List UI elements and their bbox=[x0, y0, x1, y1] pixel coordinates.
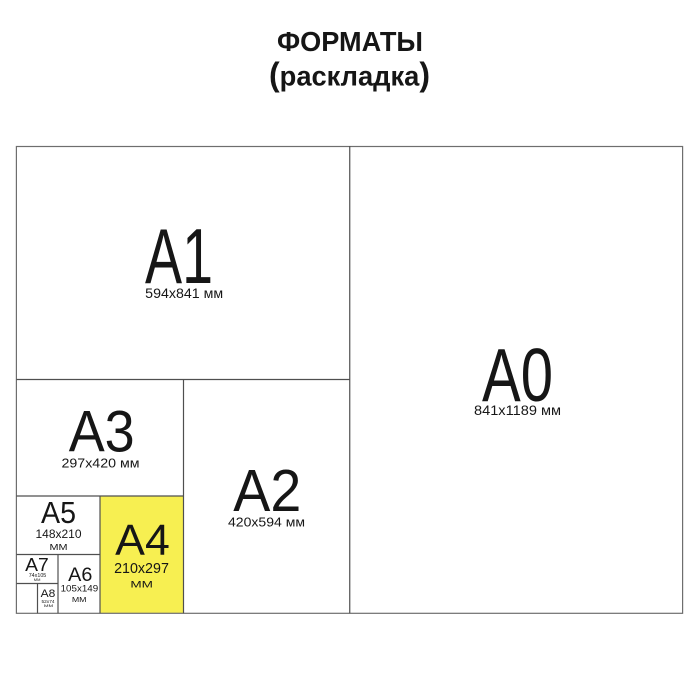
svg-text:148x210: 148x210 bbox=[36, 527, 82, 541]
svg-text:841x1189 мм: 841x1189 мм bbox=[474, 402, 561, 418]
svg-text:105x149: 105x149 bbox=[61, 583, 99, 594]
svg-text:A4: A4 bbox=[115, 516, 170, 565]
svg-text:420x594 мм: 420x594 мм bbox=[228, 514, 305, 529]
svg-text:ММ: ММ bbox=[72, 597, 87, 604]
svg-text:ММ: ММ bbox=[34, 578, 41, 582]
svg-text:(раскладка): (раскладка) bbox=[269, 56, 430, 93]
svg-text:210x297: 210x297 bbox=[114, 561, 169, 577]
svg-text:297x420 мм: 297x420 мм bbox=[62, 455, 140, 470]
svg-text:594x841 мм: 594x841 мм bbox=[145, 286, 223, 301]
svg-text:A5: A5 bbox=[41, 495, 76, 530]
svg-text:ММ: ММ bbox=[50, 543, 68, 552]
svg-text:ФОРМАТЫ: ФОРМАТЫ bbox=[277, 26, 423, 57]
svg-text:ММ: ММ bbox=[130, 580, 153, 591]
svg-text:A7: A7 bbox=[25, 554, 49, 575]
svg-text:ММ: ММ bbox=[44, 604, 54, 608]
